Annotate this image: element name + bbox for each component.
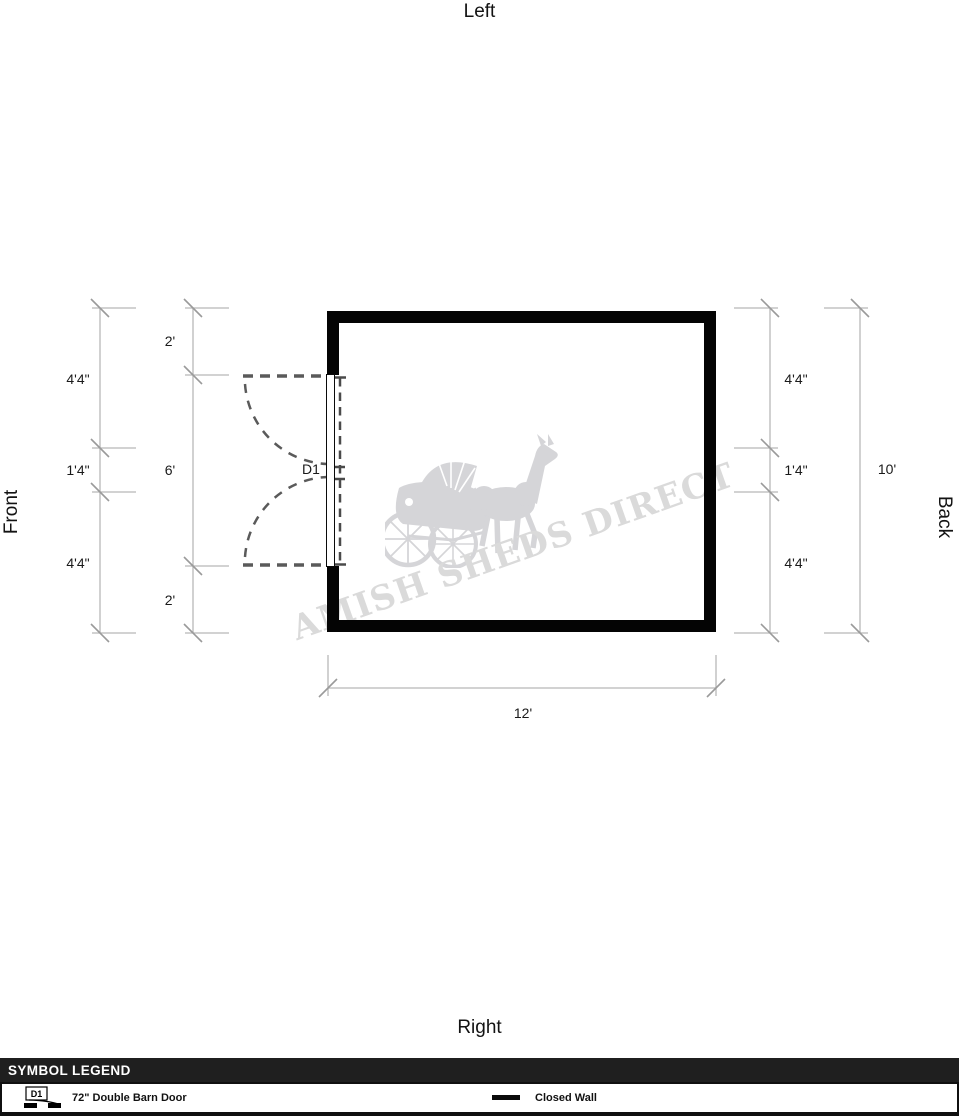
door-swing-arc-top [245, 384, 327, 464]
orientation-label-right-side: Right [0, 1017, 959, 1039]
legend-item-door: D1 72" Double Barn Door [22, 1084, 187, 1113]
orientation-label-left-side: Left [0, 1, 959, 23]
dim-label-left-outer-3: 4'4" [66, 555, 89, 571]
legend-header: SYMBOL LEGEND [0, 1058, 959, 1082]
dim-label-right-inner-1: 4'4" [784, 371, 807, 387]
dim-label-right-inner-3: 4'4" [784, 555, 807, 571]
wall-right-side [327, 620, 716, 632]
door-panel [326, 374, 335, 567]
dim-label-left-outer-2: 1'4" [66, 462, 89, 478]
door-closed-dashed-outline [334, 378, 346, 565]
wall-back-side [704, 311, 716, 632]
orientation-label-back-side: Back [933, 496, 955, 538]
legend-item-closed-wall: Closed Wall [492, 1084, 597, 1113]
dim-label-left-inner-2: 6' [165, 462, 175, 478]
legend-item-door-label: 72" Double Barn Door [72, 1092, 187, 1104]
double-barn-door-symbol-icon: D1 [22, 1085, 64, 1111]
dim-label-right-outer: 10' [878, 461, 896, 477]
orientation-label-front-side: Front [1, 490, 23, 534]
symbol-legend: SYMBOL LEGEND D1 72" Double Barn Door Cl… [0, 1058, 959, 1116]
legend-item-closed-wall-label: Closed Wall [535, 1092, 597, 1104]
legend-title: SYMBOL LEGEND [0, 1063, 131, 1078]
dim-label-left-inner-1: 2' [165, 333, 175, 349]
wall-front-upper-segment [327, 311, 339, 375]
dim-label-bottom: 12' [514, 705, 532, 721]
door-label: D1 [302, 461, 320, 477]
dim-label-left-inner-3: 2' [165, 592, 175, 608]
wall-left-side [327, 311, 716, 323]
closed-wall-swatch-icon [492, 1095, 520, 1100]
door-swing-linework [0, 0, 959, 1116]
floor-plan-page: Left Right Front Back [0, 0, 959, 1116]
wall-front-lower-segment [327, 566, 339, 632]
legend-door-symbol-id: D1 [31, 1089, 43, 1099]
dim-label-left-outer-1: 4'4" [66, 371, 89, 387]
legend-row: D1 72" Double Barn Door Closed Wall [2, 1084, 957, 1113]
door-swing-arc-bottom [245, 477, 327, 557]
dim-label-right-inner-2: 1'4" [784, 462, 807, 478]
